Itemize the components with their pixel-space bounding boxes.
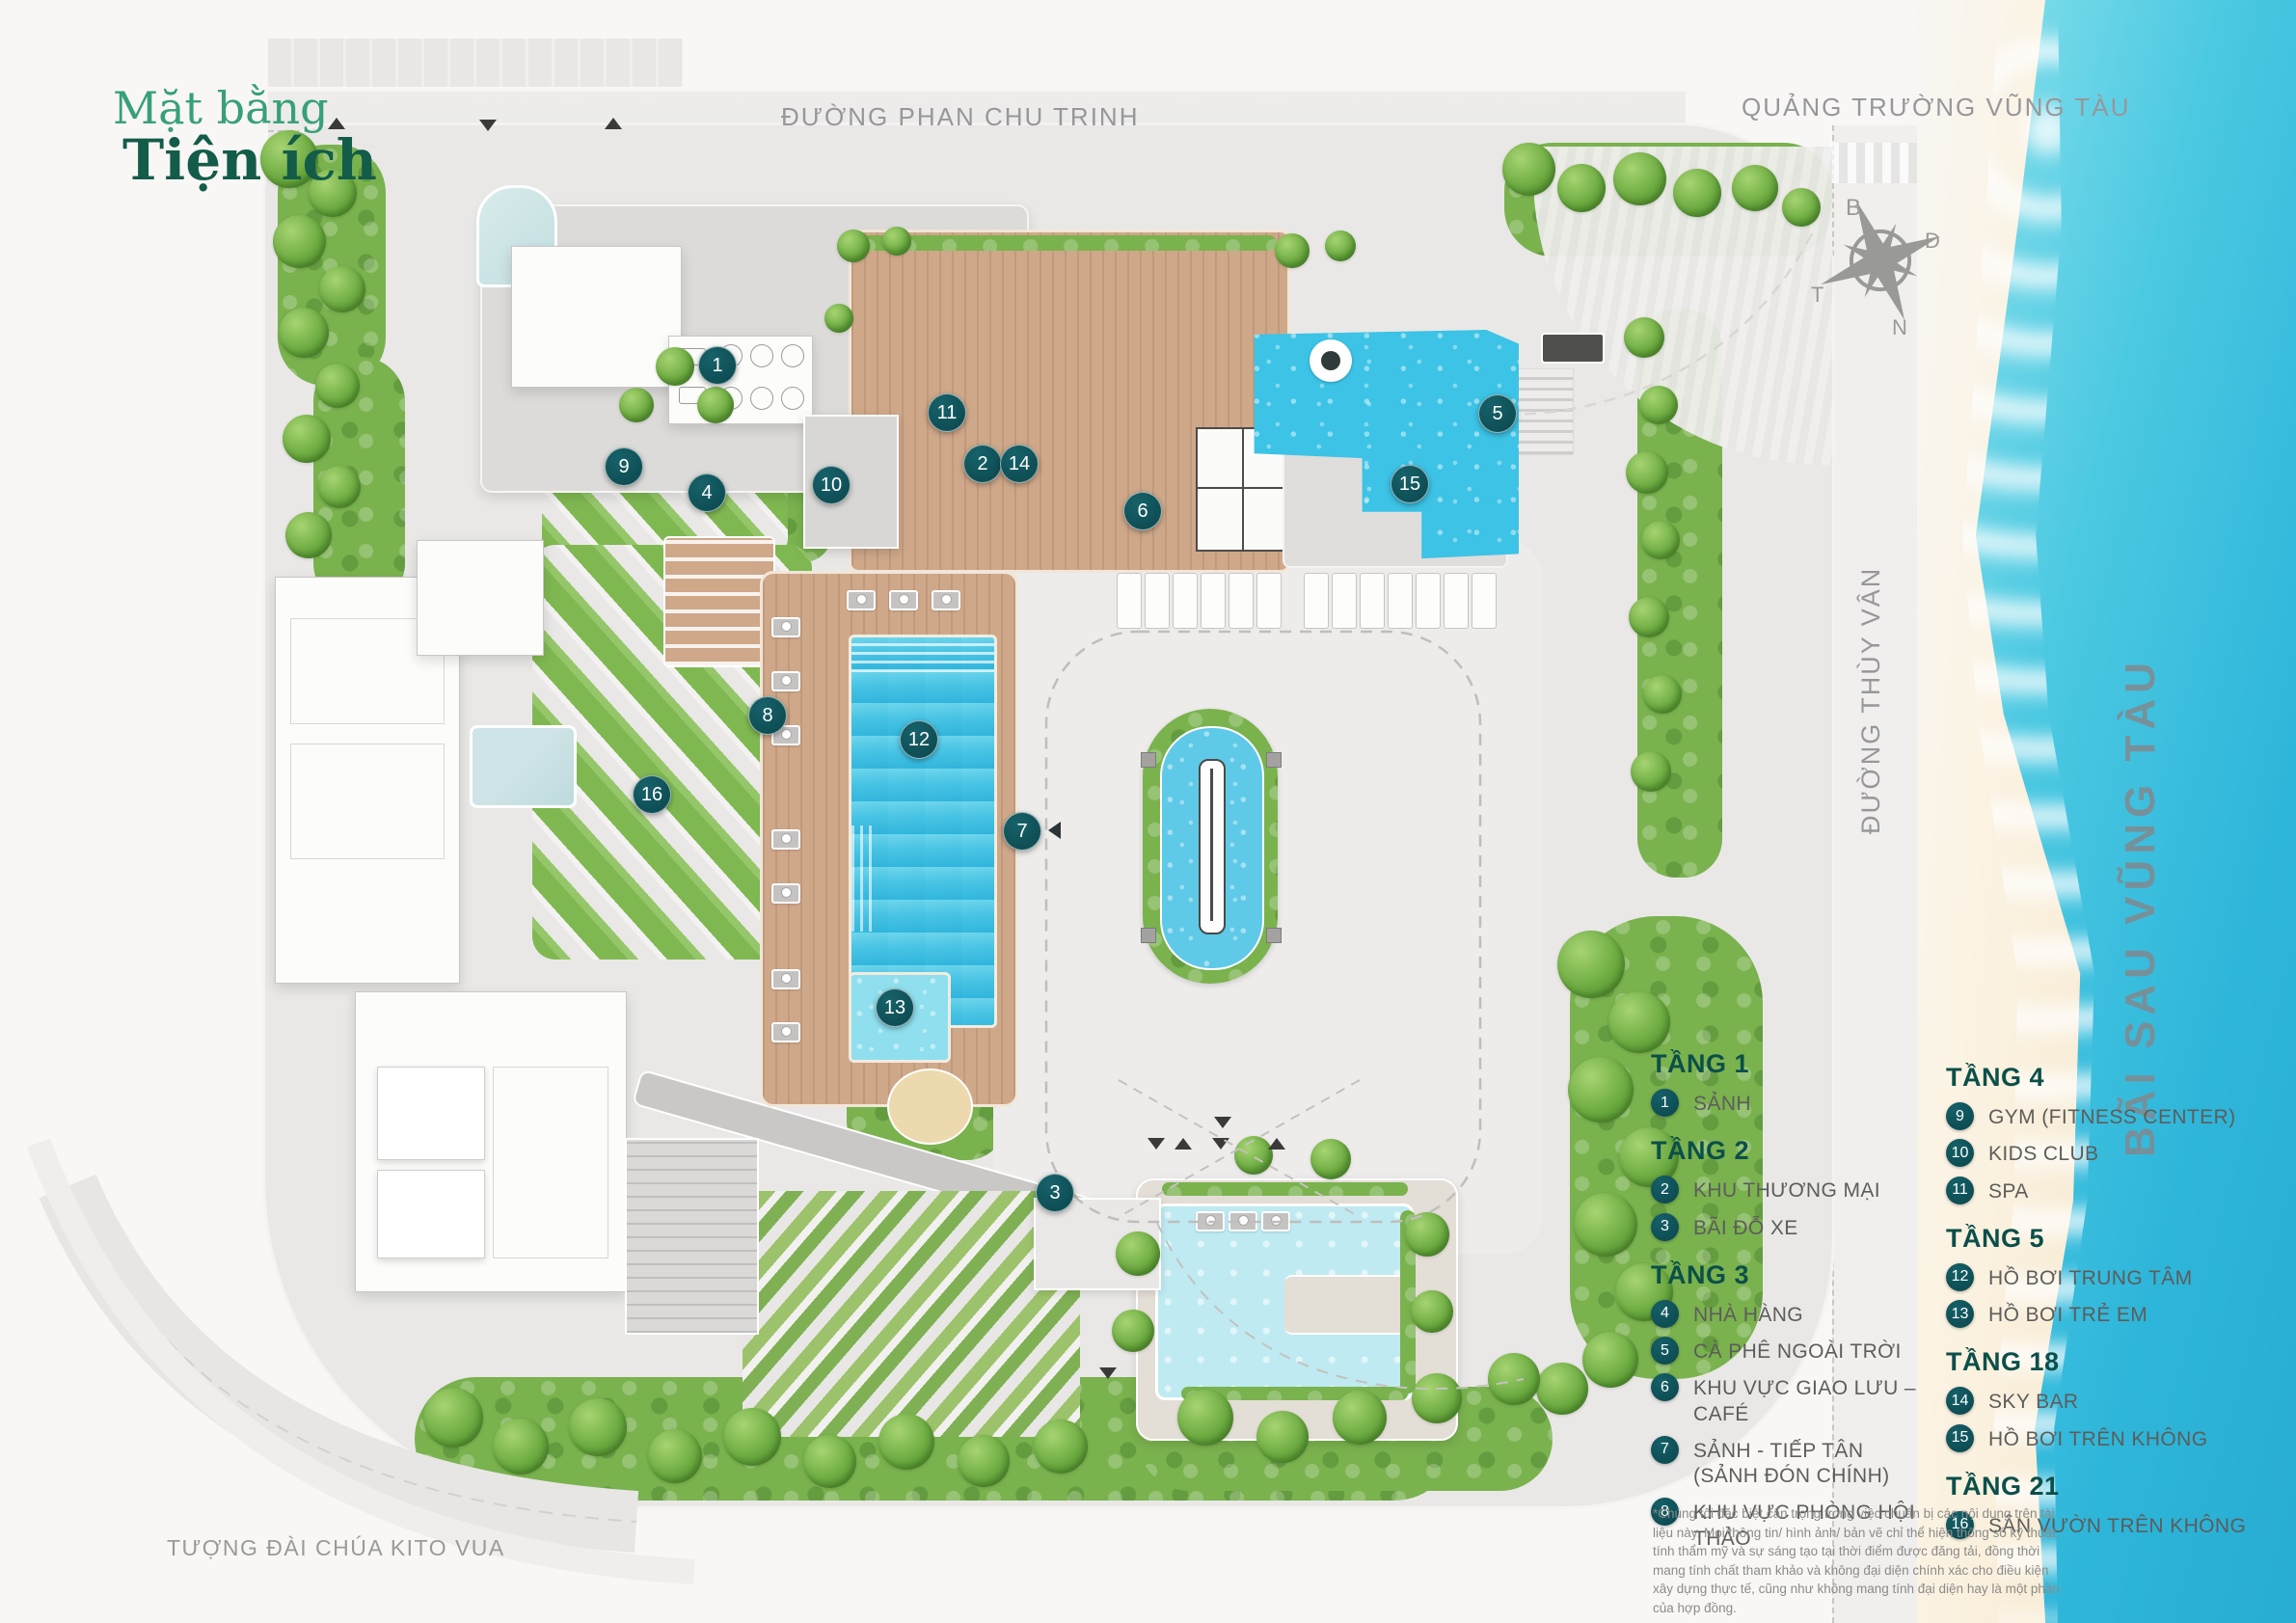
map-marker-14: 14 xyxy=(1000,445,1039,483)
map-marker-1: 1 xyxy=(698,346,737,385)
compass-rose: B Đ T N xyxy=(1803,178,1967,347)
legend-badge-4: 4 xyxy=(1651,1300,1679,1328)
legend-badge-3: 3 xyxy=(1651,1213,1679,1241)
legend-label-14: SKY BAR xyxy=(1988,1387,2078,1415)
legend-badge-5: 5 xyxy=(1651,1337,1679,1365)
legend-label-9: GYM (FITNESS CENTER) xyxy=(1988,1102,2236,1130)
legend-item-4: 4NHÀ HÀNG xyxy=(1651,1300,1969,1328)
legend-item-5: 5CÀ PHÊ NGOÀI TRỜI xyxy=(1651,1337,1969,1365)
map-marker-3: 3 xyxy=(1036,1174,1074,1212)
map-marker-8: 8 xyxy=(748,696,787,735)
legend-badge-2: 2 xyxy=(1651,1176,1679,1204)
legend-item-9: 9GYM (FITNESS CENTER) xyxy=(1946,1102,2283,1130)
svg-text:T: T xyxy=(1811,283,1823,307)
svg-text:B: B xyxy=(1846,195,1861,221)
legend-item-1: 1SẢNH xyxy=(1651,1089,1969,1117)
legend-label-3: BÃI ĐỖ XE xyxy=(1693,1213,1798,1241)
legend-item-12: 12HỒ BƠI TRUNG TÂM xyxy=(1946,1263,2283,1291)
legend-heading: TẦNG 4 xyxy=(1946,1063,2283,1093)
page-title: Mặt bằng Tiện ích xyxy=(113,85,377,190)
map-marker-6: 6 xyxy=(1123,492,1162,530)
legend-label-15: HỒ BƠI TRÊN KHÔNG xyxy=(1988,1424,2207,1452)
map-marker-16: 16 xyxy=(633,775,671,814)
top-right-area-label: QUẢNG TRƯỜNG VŨNG TÀU xyxy=(1742,93,2130,122)
legend-heading: TẦNG 2 xyxy=(1651,1136,1969,1166)
legend-label-7: SẢNH - TIẾP TÂN (SẢNH ĐÓN CHÍNH) xyxy=(1693,1436,1890,1490)
legend-badge-9: 9 xyxy=(1946,1102,1974,1130)
legend-heading: TẦNG 21 xyxy=(1946,1472,2283,1501)
legend-label-12: HỒ BƠI TRUNG TÂM xyxy=(1988,1263,2192,1291)
page-title-line2: Tiện ích xyxy=(122,131,377,190)
legend-badge-12: 12 xyxy=(1946,1263,1974,1291)
right-road-label: ĐƯỜNG THÙY VÂN xyxy=(1856,535,1886,834)
legend-badge-11: 11 xyxy=(1946,1177,1974,1204)
legend-label-5: CÀ PHÊ NGOÀI TRỜI xyxy=(1693,1337,1902,1365)
legend-badge-1: 1 xyxy=(1651,1089,1679,1117)
legend-badge-15: 15 xyxy=(1946,1424,1974,1452)
legend-heading: TẦNG 3 xyxy=(1651,1260,1969,1290)
legend-label-11: SPA xyxy=(1988,1177,2029,1204)
bottom-left-area-label: TƯỢNG ĐÀI CHÚA KITO VUA xyxy=(167,1535,505,1561)
legend-label-2: KHU THƯƠNG MẠI xyxy=(1693,1176,1880,1204)
map-marker-5: 5 xyxy=(1478,394,1517,433)
legend-heading: TẦNG 1 xyxy=(1651,1049,1969,1079)
site-plan-page: 12345678910111213141516 B Đ T N Mặt bằng… xyxy=(0,0,2296,1623)
legend-item-2: 2KHU THƯƠNG MẠI xyxy=(1651,1176,1969,1204)
svg-text:N: N xyxy=(1892,315,1907,339)
map-marker-9: 9 xyxy=(605,447,643,486)
top-road-label: ĐƯỜNG PHAN CHU TRINH xyxy=(781,102,1139,132)
legend-label-13: HỒ BƠI TRẺ EM xyxy=(1988,1300,2147,1328)
map-marker-7: 7 xyxy=(1003,812,1041,851)
legend-badge-14: 14 xyxy=(1946,1387,1974,1415)
map-marker-12: 12 xyxy=(900,720,938,759)
legend-column-2: TẦNG 49GYM (FITNESS CENTER)10KIDS CLUB11… xyxy=(1946,1043,2283,1548)
map-marker-2: 2 xyxy=(963,445,1002,483)
legend-heading: TẦNG 5 xyxy=(1946,1224,2283,1254)
legend-label-10: KIDS CLUB xyxy=(1988,1139,2098,1167)
legend-label-4: NHÀ HÀNG xyxy=(1693,1300,1803,1328)
legend-label-6: KHU VỰC GIAO LƯU – CAFÉ xyxy=(1693,1373,1969,1427)
map-marker-15: 15 xyxy=(1391,465,1429,503)
legend-item-15: 15HỒ BƠI TRÊN KHÔNG xyxy=(1946,1424,2283,1452)
page-title-line1: Mặt bằng xyxy=(113,85,377,131)
svg-text:Đ: Đ xyxy=(1925,229,1940,253)
legend-item-7: 7SẢNH - TIẾP TÂN (SẢNH ĐÓN CHÍNH) xyxy=(1651,1436,1969,1490)
legend-item-3: 3BÃI ĐỖ XE xyxy=(1651,1213,1969,1241)
legend-badge-13: 13 xyxy=(1946,1300,1974,1328)
disclaimer: *Chúng tôi đặc biệt cẩn trọng trong việc… xyxy=(1653,1504,2062,1617)
legend-item-10: 10KIDS CLUB xyxy=(1946,1139,2283,1167)
legend-badge-6: 6 xyxy=(1651,1373,1679,1401)
legend-badge-10: 10 xyxy=(1946,1139,1974,1167)
legend-label-1: SẢNH xyxy=(1693,1089,1751,1117)
map-marker-13: 13 xyxy=(876,988,914,1027)
legend-item-11: 11SPA xyxy=(1946,1177,2283,1204)
legend-heading: TẦNG 18 xyxy=(1946,1347,2283,1377)
legend-item-13: 13HỒ BƠI TRẺ EM xyxy=(1946,1300,2283,1328)
legend-badge-7: 7 xyxy=(1651,1436,1679,1464)
map-marker-4: 4 xyxy=(688,473,726,512)
legend-item-6: 6KHU VỰC GIAO LƯU – CAFÉ xyxy=(1651,1373,1969,1427)
legend-item-14: 14SKY BAR xyxy=(1946,1387,2283,1415)
map-marker-11: 11 xyxy=(928,393,966,432)
map-marker-10: 10 xyxy=(812,466,851,504)
legend-column-1: TẦNG 11SẢNHTẦNG 22KHU THƯƠNG MẠI3BÃI ĐỖ … xyxy=(1651,1030,1969,1560)
